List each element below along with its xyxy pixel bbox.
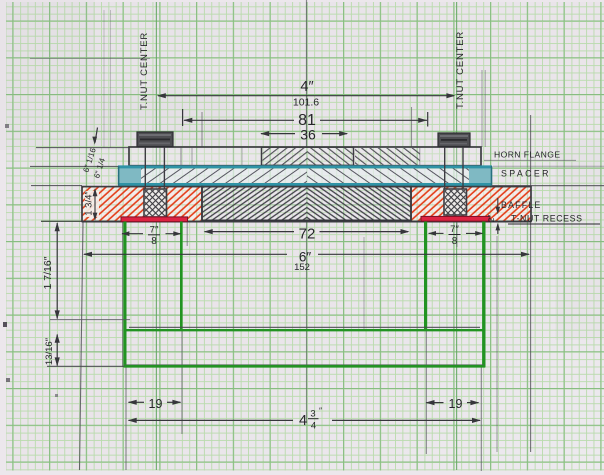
svg-text:4″: 4″ <box>300 79 313 95</box>
svg-text:13/16″: 13/16″ <box>44 337 55 365</box>
svg-text:72: 72 <box>299 226 316 243</box>
svg-text:152: 152 <box>294 262 310 273</box>
svg-text:1 7/16″: 1 7/16″ <box>42 256 54 289</box>
svg-text:BAFFLE: BAFFLE <box>501 200 541 210</box>
svg-text:4: 4 <box>311 421 316 432</box>
svg-text:SPACER: SPACER <box>501 169 551 179</box>
svg-text:T.NUT CENTER: T.NUT CENTER <box>455 31 466 109</box>
svg-text:7″: 7″ <box>450 224 459 235</box>
svg-text:8: 8 <box>151 236 157 247</box>
svg-text:19: 19 <box>149 397 163 411</box>
svg-text:HORN FLANGE: HORN FLANGE <box>494 150 560 160</box>
svg-text:4: 4 <box>299 413 307 429</box>
svg-text:T.NUT CENTER: T.NUT CENTER <box>139 32 150 110</box>
svg-text:1 3/4″: 1 3/4″ <box>84 191 95 216</box>
svg-text:T-NUT RECESS: T-NUT RECESS <box>511 214 583 224</box>
svg-text:19: 19 <box>449 397 463 411</box>
svg-text:3: 3 <box>310 409 315 420</box>
svg-text:101.6: 101.6 <box>293 97 319 109</box>
svg-text:7″: 7″ <box>150 225 159 236</box>
svg-text:″: ″ <box>319 406 322 416</box>
svg-text:36: 36 <box>300 127 316 143</box>
svg-text:2″: 2″ <box>486 215 496 223</box>
svg-text:8: 8 <box>452 236 458 247</box>
